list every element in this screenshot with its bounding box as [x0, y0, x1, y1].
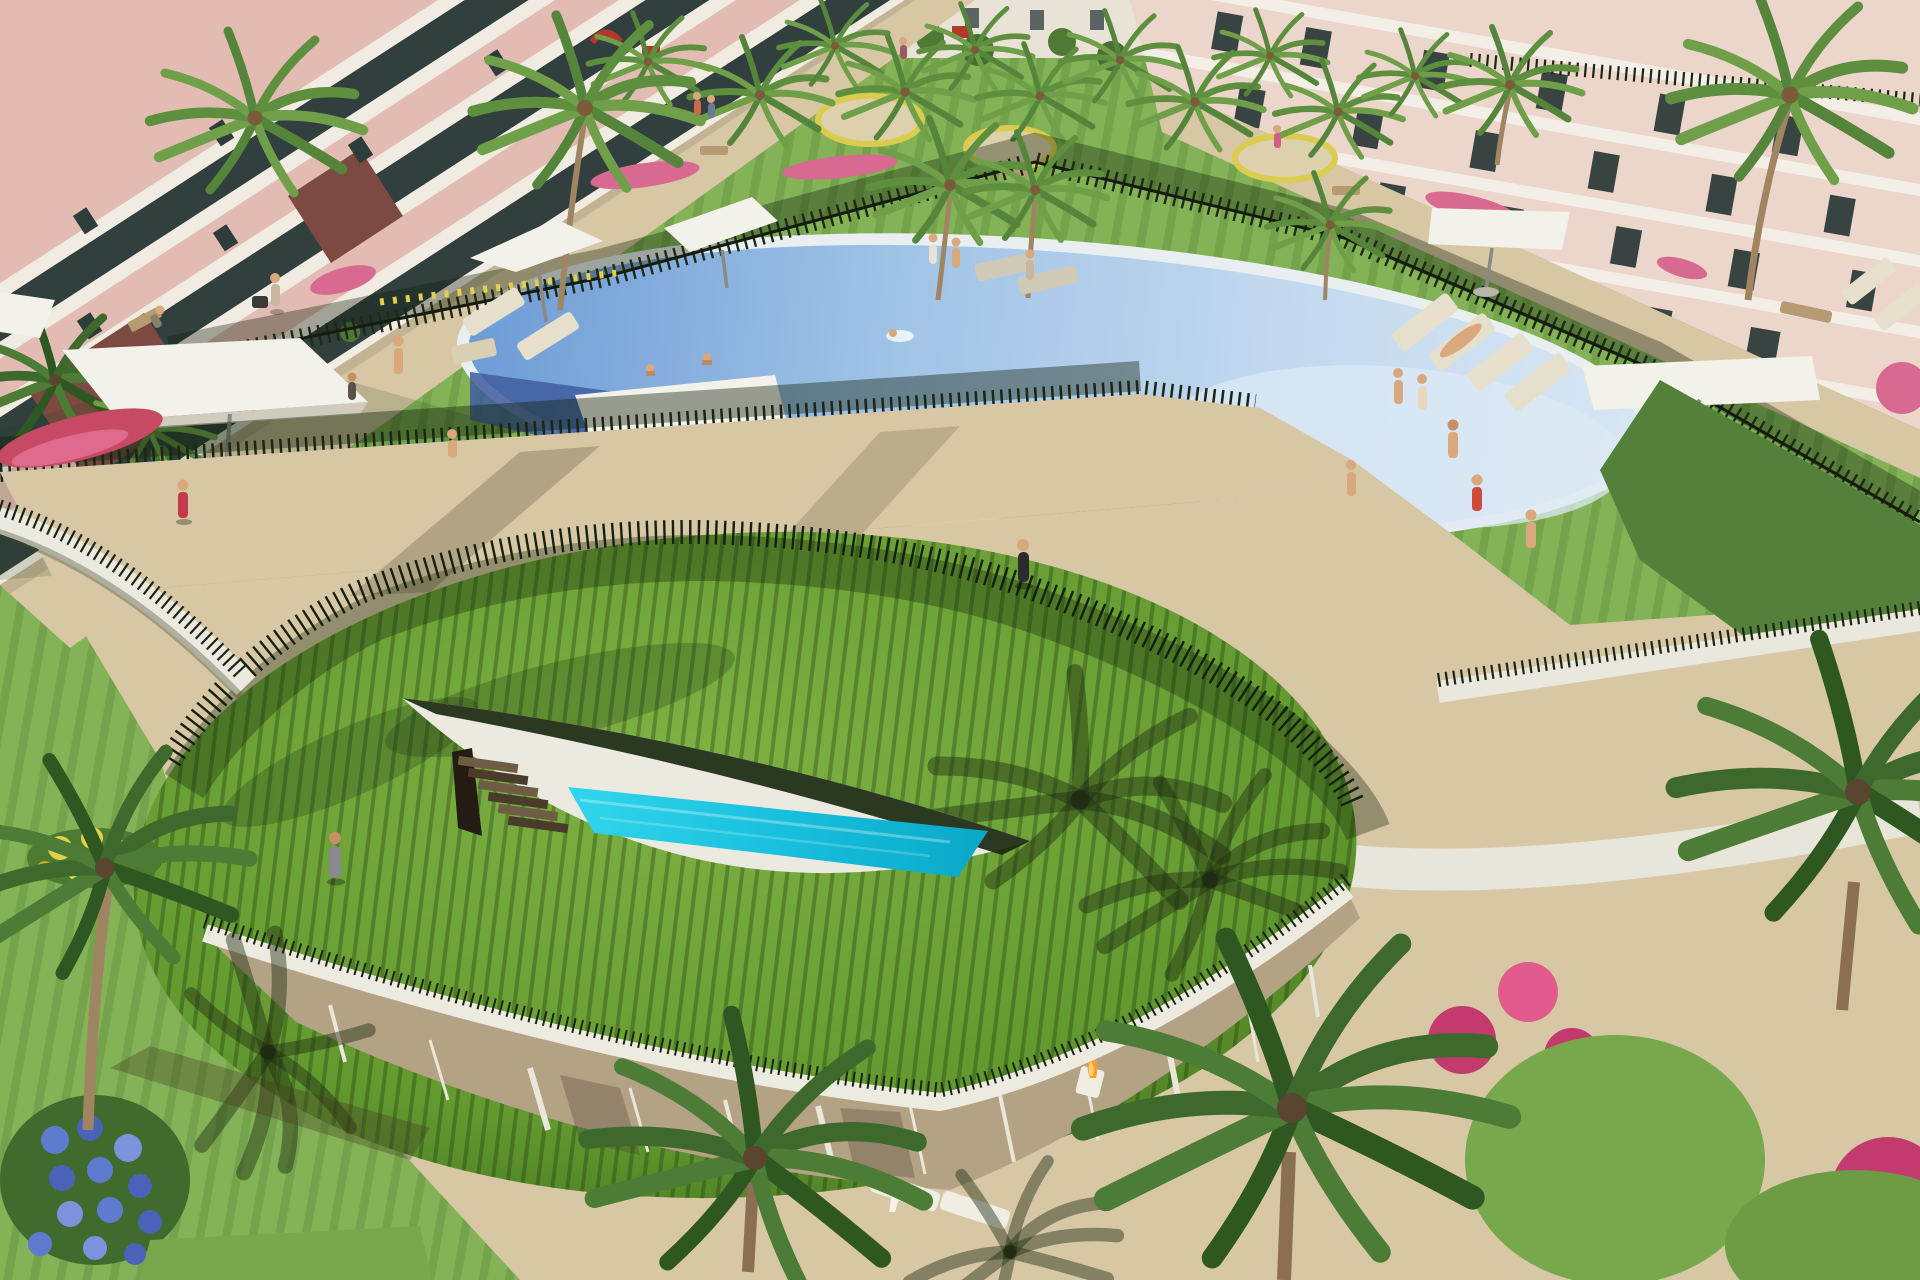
person [393, 336, 404, 375]
umbrella-base [1473, 287, 1499, 297]
render-canvas [0, 0, 1920, 1280]
person [693, 92, 701, 115]
palm-trunk [748, 1182, 753, 1272]
person [348, 373, 357, 401]
person [447, 429, 457, 458]
person [1417, 374, 1427, 410]
umbrella-canopy [1428, 208, 1570, 250]
person [1026, 250, 1035, 281]
person [899, 37, 907, 59]
resort-aerial-render [0, 0, 1920, 1280]
person [707, 95, 715, 118]
stroller [252, 296, 268, 308]
person [952, 238, 961, 269]
person [1273, 125, 1281, 148]
person [1346, 460, 1356, 496]
person [929, 234, 938, 265]
grass-patch [1465, 1035, 1765, 1280]
palm-trunk [1284, 1152, 1289, 1280]
person [1526, 510, 1537, 549]
park-bench [700, 146, 728, 155]
person [1393, 368, 1403, 404]
person [1472, 475, 1483, 512]
person [1448, 420, 1459, 459]
